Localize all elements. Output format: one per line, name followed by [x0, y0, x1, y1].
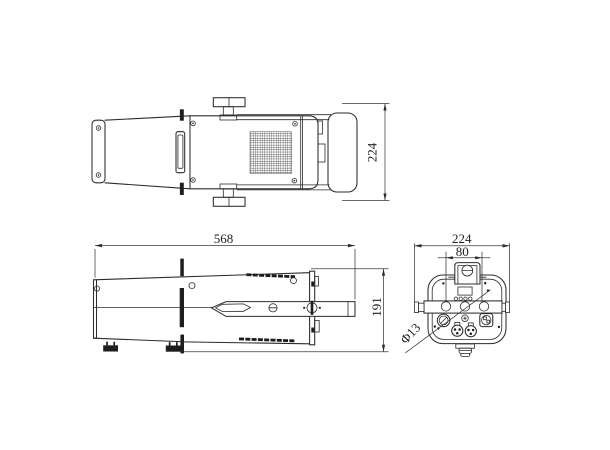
foot: [103, 342, 118, 352]
xlr-connector: [452, 322, 463, 336]
handle-bar: [180, 288, 184, 327]
dimension-label-top-width: 224: [365, 142, 380, 162]
latch-tab: [315, 321, 320, 333]
carry-handle-slot: [176, 132, 185, 173]
crossbar-knob: [415, 302, 419, 313]
latch-tab: [318, 121, 323, 134]
hanging-bracket: [449, 263, 487, 284]
rear-panel-joint: [301, 117, 303, 189]
latch: [311, 328, 314, 333]
xlr-connector: [465, 323, 476, 337]
lock-pin: [180, 335, 184, 354]
lens-end-edge: [94, 280, 97, 338]
screw: [269, 304, 277, 312]
side-view: 568 191: [94, 231, 389, 353]
hole: [189, 283, 195, 289]
latch-tab: [318, 144, 325, 162]
latch-tab: [315, 277, 319, 287]
dimension-label-hole-spacing: 80: [456, 244, 469, 259]
tilt-knob-bottom: [213, 184, 245, 206]
hanging-hole: [479, 302, 488, 311]
yoke-side: [212, 301, 356, 317]
screw: [191, 121, 196, 126]
hanging-hole: [441, 302, 450, 311]
screw: [293, 121, 298, 126]
technical-drawing: 224: [0, 0, 610, 450]
dimension-label-side-height: 191: [369, 297, 384, 317]
vent-grill: [250, 132, 292, 174]
drawing-svg: 224: [0, 0, 610, 450]
vent-slots: [239, 339, 295, 341]
screw: [462, 315, 469, 322]
screw: [96, 173, 101, 178]
dimension-top-width: 224: [342, 104, 390, 201]
display-window: [458, 287, 472, 295]
lamp-body-top: [92, 109, 325, 195]
lock-pin: [180, 109, 184, 120]
front-housing-edges: [105, 116, 190, 189]
screw: [96, 126, 101, 131]
menu-buttons: [454, 297, 472, 300]
hole: [291, 278, 297, 284]
lens-end-cap: [92, 120, 105, 183]
rear-view: 224 80: [397, 231, 509, 356]
dimension-side-length: 568: [95, 231, 355, 300]
top-view: 224: [92, 98, 390, 207]
crossbar-knob: [506, 302, 510, 313]
vent-slots: [247, 275, 296, 277]
clamp-bracket: [456, 344, 475, 356]
power-connector: [480, 314, 493, 327]
screw: [191, 178, 196, 183]
crossbar-shaft: [502, 303, 506, 311]
lock-pin: [180, 259, 184, 277]
foot: [166, 342, 181, 352]
body-top-edge: [94, 273, 310, 280]
handle-grip: [216, 304, 251, 312]
crossbar-shaft: [419, 303, 425, 311]
lock-pin: [180, 183, 184, 195]
latch: [311, 282, 314, 287]
screw: [292, 178, 297, 183]
tilt-knob-top: [213, 98, 245, 120]
dimension-label-side-length: 568: [214, 231, 234, 246]
yoke-back: [328, 113, 357, 192]
